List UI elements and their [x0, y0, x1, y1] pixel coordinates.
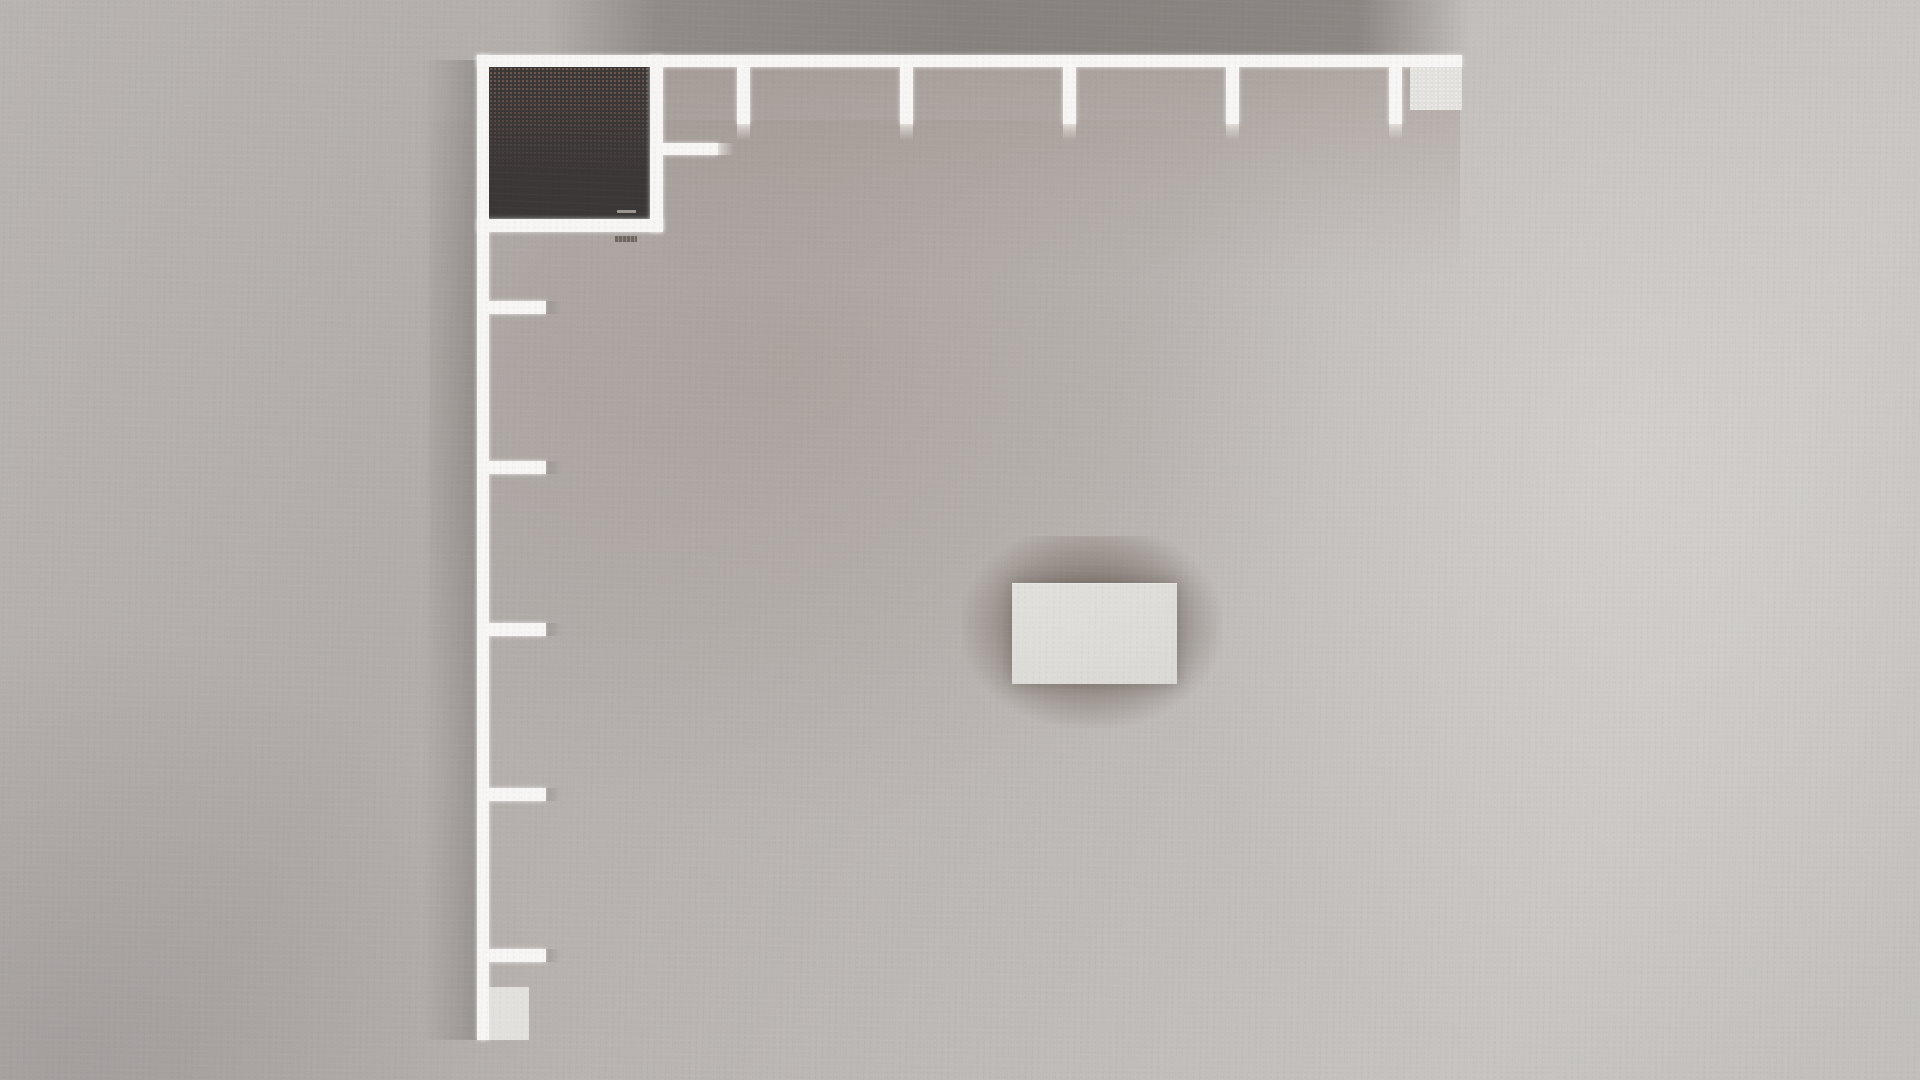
top-wall-stub-4-remnant [1226, 124, 1239, 140]
center-table-top [1012, 583, 1177, 684]
left-wall-stub-5-remnant [546, 949, 561, 962]
top-wall-stub-1 [737, 67, 750, 124]
left-wall-stub-2-remnant [546, 461, 561, 474]
closet-right-wall [650, 55, 663, 232]
closet-side-stub [663, 143, 718, 155]
left-wall-stub-1 [489, 301, 546, 314]
closet-interior [489, 67, 650, 219]
scene-objects [0, 0, 1920, 1080]
closet-side-stub-remnant [718, 143, 734, 155]
left-wall [477, 55, 489, 1040]
left-wall-stub-3-remnant [546, 623, 561, 636]
closet-door-handle-outer [615, 236, 637, 242]
top-wall-stub-5-remnant [1389, 124, 1402, 140]
left-wall-stub-4-remnant [546, 788, 561, 801]
wall-shadow-below-top-wall [663, 67, 1460, 277]
top-wall-stub-5 [1389, 67, 1402, 124]
closet-bottom-wall [477, 219, 663, 232]
room-top-down-view [0, 0, 1920, 1080]
left-wall-stub-5 [489, 949, 546, 962]
top-wall-stub-1-remnant [737, 124, 750, 140]
top-wall-stub-2-remnant [900, 124, 913, 140]
left-wall-end-block [489, 987, 529, 1040]
left-wall-stub-2 [489, 461, 546, 474]
top-wall-stub-3-remnant [1063, 124, 1076, 140]
top-wall-end-block [1410, 67, 1462, 110]
top-wall-stub-4 [1226, 67, 1239, 124]
wall-shadow-left-of-left-wall [423, 60, 477, 1040]
closet-door-handle-inner [617, 210, 636, 213]
wall-shadow-above-top-wall [545, 0, 1470, 56]
left-wall-stub-1-remnant [546, 301, 561, 314]
top-wall-stub-3 [1063, 67, 1076, 124]
left-wall-stub-3 [489, 623, 546, 636]
top-wall-stub-2 [900, 67, 913, 124]
left-wall-stub-4 [489, 788, 546, 801]
top-wall [477, 55, 1462, 67]
